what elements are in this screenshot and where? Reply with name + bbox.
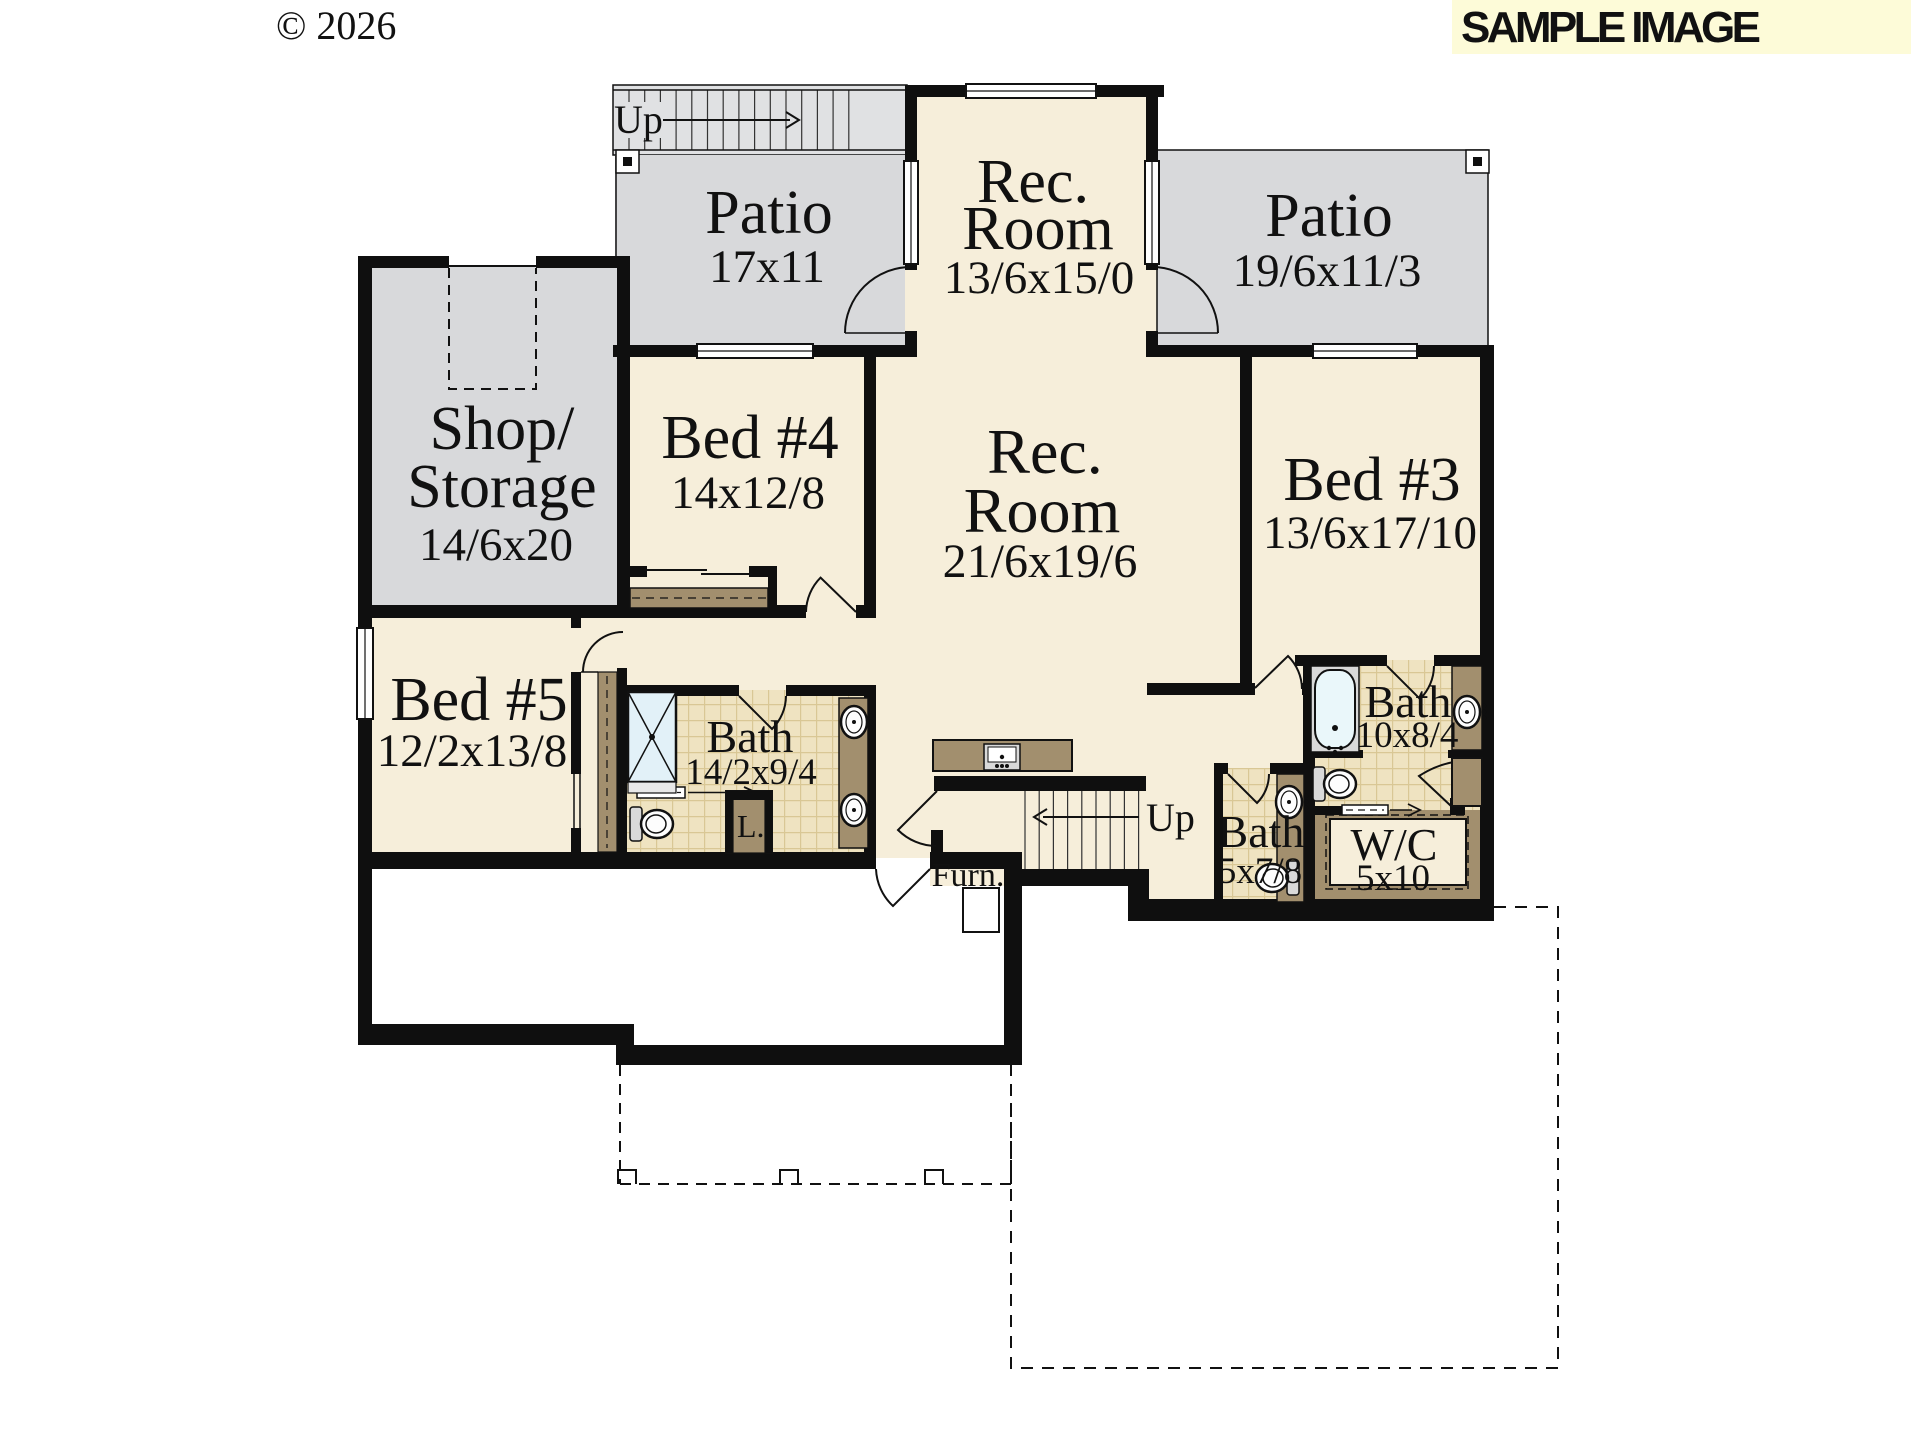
svg-text:14/2x9/4: 14/2x9/4 xyxy=(685,752,817,793)
svg-text:17x11: 17x11 xyxy=(709,241,825,293)
svg-text:SAMPLE IMAGE: SAMPLE IMAGE xyxy=(1461,3,1761,52)
svg-text:5x10: 5x10 xyxy=(1356,858,1430,899)
svg-text:L.: L. xyxy=(737,808,765,844)
svg-text:19/6x11/3: 19/6x11/3 xyxy=(1233,245,1422,297)
svg-text:21/6x19/6: 21/6x19/6 xyxy=(943,535,1138,588)
svg-text:Bath: Bath xyxy=(1218,806,1305,857)
svg-text:Storage: Storage xyxy=(407,453,596,521)
svg-text:© 2026: © 2026 xyxy=(276,3,396,48)
svg-text:Bed #3: Bed #3 xyxy=(1283,446,1460,514)
svg-text:Up: Up xyxy=(1146,795,1195,840)
svg-text:Bed #4: Bed #4 xyxy=(661,404,838,472)
svg-text:14x12/8: 14x12/8 xyxy=(671,467,825,519)
svg-text:13/6x17/10: 13/6x17/10 xyxy=(1263,507,1477,559)
svg-text:12/2x13/8: 12/2x13/8 xyxy=(377,725,568,777)
svg-text:Patio: Patio xyxy=(1265,182,1392,250)
svg-text:Furn.: Furn. xyxy=(932,857,1005,894)
svg-text:5x7/8: 5x7/8 xyxy=(1218,851,1302,892)
svg-text:Up: Up xyxy=(614,97,663,142)
svg-text:Patio: Patio xyxy=(705,179,832,247)
svg-text:14/6x20: 14/6x20 xyxy=(419,519,573,571)
svg-text:10x8/4: 10x8/4 xyxy=(1356,715,1459,756)
svg-text:13/6x15/0: 13/6x15/0 xyxy=(944,252,1135,304)
svg-text:Bed #5: Bed #5 xyxy=(390,666,567,734)
